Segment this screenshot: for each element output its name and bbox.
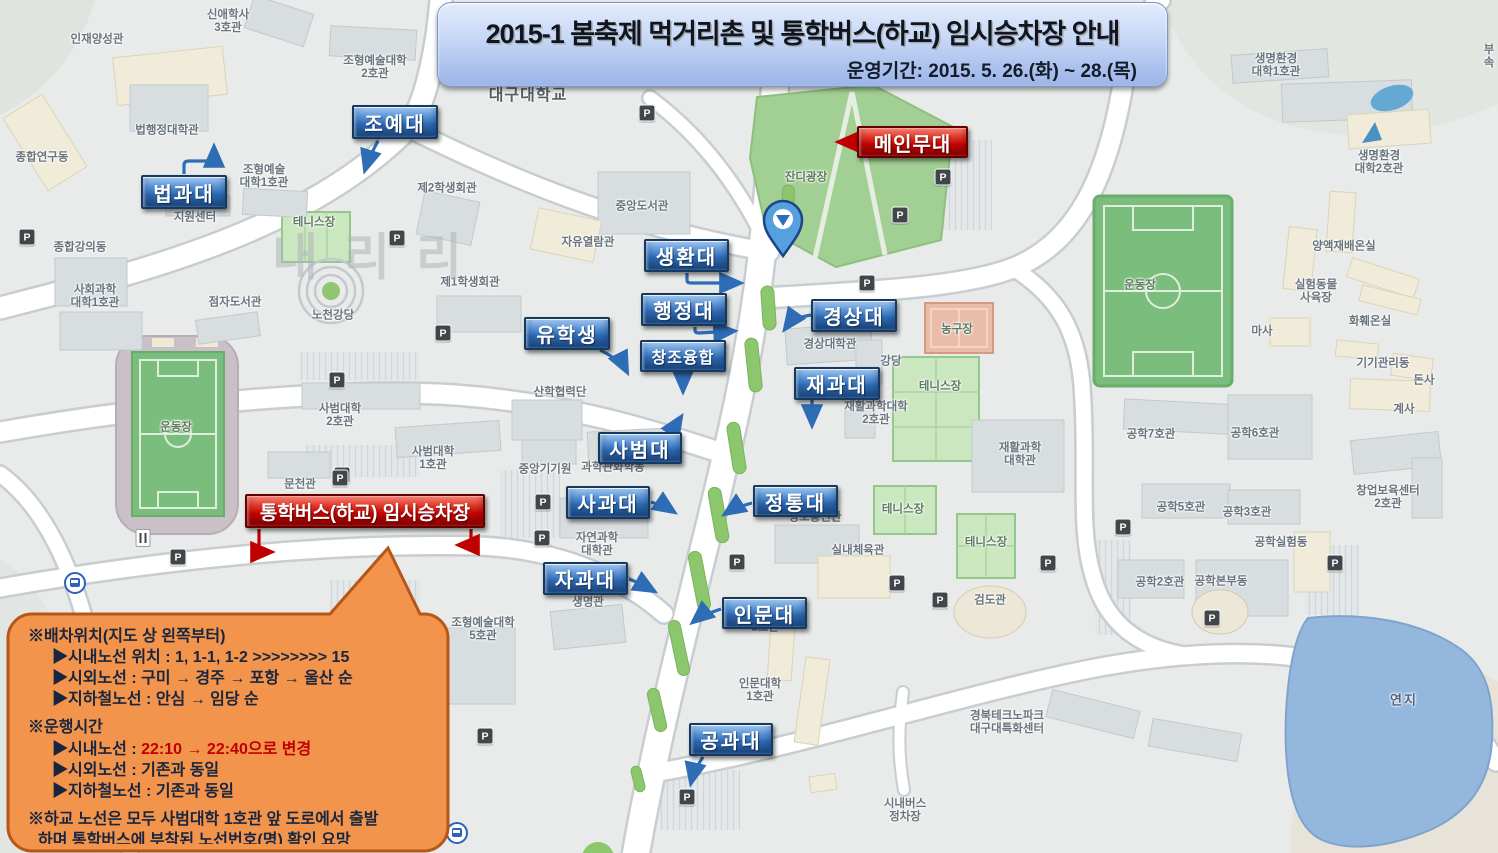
callout-gyeongsangdae: 경상대 [811, 299, 897, 332]
callout-jaegwadae: 재과대 [794, 367, 880, 400]
callout-gonggwadae: 공과대 [689, 723, 773, 756]
arrow-sagwadae [651, 502, 674, 512]
arrow-gyeongsangdae [785, 315, 811, 329]
notice-heading: ※운행시간 [28, 717, 432, 738]
callout-changjo-yunghap: 창조융합 [640, 340, 726, 372]
arrow-yuhaksaeng [600, 350, 627, 372]
callout-jagwadae: 자과대 [543, 562, 628, 595]
arrow-sabeomdae [672, 417, 681, 431]
notice-item: ▶시내노선 위치 : 1, 1-1, 1-2 >>>>>>>> 15 [28, 647, 432, 668]
notice-highlight: 22:10 → 22:40으로 변경 [141, 741, 311, 758]
notice-bubble: ※배차위치(지도 상 왼쪽부터)▶시내노선 위치 : 1, 1-1, 1-2 >… [28, 626, 432, 844]
notice-item: ▶시내노선 : 22:10 → 22:40으로 변경 [28, 739, 432, 760]
arrow-jagwadae [629, 579, 654, 591]
callout-inmundae: 인문대 [722, 597, 807, 629]
arrow-saenghwandae [687, 273, 740, 283]
banner-title: 2015-1 봄축제 먹거리촌 및 통학버스(하교) 임시승차장 안내 [438, 12, 1167, 51]
arrow-beopgwadae [184, 147, 214, 174]
arrow-busstop-right [459, 529, 471, 545]
notice-item: 하며 통학버스에 부착된 노선번호(명) 확인 요망 [28, 830, 432, 844]
arrow-inmundae [693, 609, 721, 622]
arrow-joyedae [365, 141, 378, 170]
callout-saenghwandae: 생환대 [644, 239, 729, 272]
arrow-gonggwadae [691, 757, 703, 783]
callout-joyedae: 조예대 [352, 105, 438, 139]
notice-item: ▶지하철노선 : 기존과 동일 [28, 781, 432, 802]
banner-subtitle: 운영기간: 2015. 5. 26.(화) ~ 28.(목) [438, 56, 1167, 83]
title-banner: 2015-1 봄축제 먹거리촌 및 통학버스(하교) 임시승차장 안내 운영기간… [437, 2, 1168, 87]
callout-jeongtongdae: 정통대 [753, 485, 838, 517]
callout-sabeomdae: 사범대 [598, 432, 682, 464]
notice-item: ▶시외노선 : 구미 → 경주 → 포항 → 울산 순 [28, 668, 432, 689]
notice-heading: ※배차위치(지도 상 왼쪽부터) [28, 626, 432, 647]
notice-item: ▶시외노선 : 기존과 동일 [28, 760, 432, 781]
festival-map-poster: 대구대학교인재양성관신애학사 3호관조형예술대학 2호관법행정대학관종합연구동조… [0, 0, 1498, 853]
arrow-haengjeongdae [695, 327, 734, 333]
callout-main-stage: 메인무대 [857, 126, 968, 158]
notice-item: ▶지하철노선 : 안심 → 임당 순 [28, 689, 432, 710]
callout-yuhaksaeng: 유학생 [524, 317, 610, 350]
callout-sagwadae: 사과대 [566, 486, 650, 519]
callout-beopgwadae: 법과대 [141, 175, 227, 209]
callout-shuttle-bus-stop: 통학버스(하교) 임시승차장 [245, 494, 485, 528]
arrow-jeongtongdae [725, 503, 752, 514]
arrow-busstop-left [259, 529, 271, 552]
notice-heading: ※하교 노선은 모두 사범대학 1호관 앞 도로에서 출발 [28, 809, 432, 830]
callout-haengjeongdae: 행정대 [641, 293, 727, 326]
